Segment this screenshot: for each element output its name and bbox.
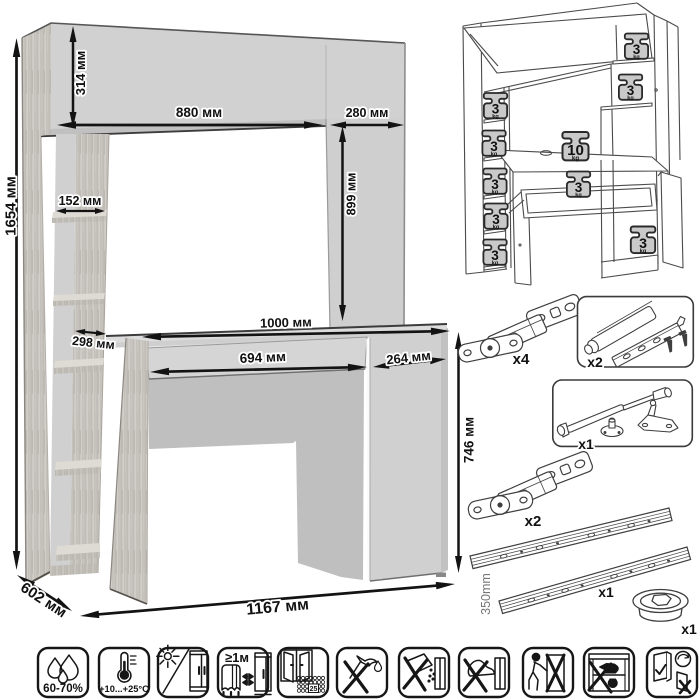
svg-text:746 мм: 746 мм [462, 417, 477, 463]
svg-text:kg: kg [627, 95, 633, 101]
svg-text:314 мм: 314 мм [73, 51, 88, 96]
svg-text:60-70%: 60-70% [43, 683, 83, 695]
svg-text:152 мм: 152 мм [59, 194, 102, 208]
svg-text:kg: kg [493, 224, 499, 230]
svg-text:1167 мм: 1167 мм [246, 596, 310, 618]
svg-text:x1: x1 [598, 584, 614, 600]
svg-text:x1: x1 [578, 436, 594, 452]
svg-text:kg: kg [492, 114, 498, 120]
svg-text:880 мм: 880 мм [176, 105, 222, 120]
svg-text:kg: kg [575, 192, 581, 198]
svg-text:602 мм: 602 мм [17, 579, 69, 621]
svg-text:kg: kg [491, 151, 497, 157]
svg-text:x1: x1 [681, 621, 697, 637]
svg-text:899 мм: 899 мм [345, 173, 359, 216]
svg-text:x4: x4 [513, 351, 530, 368]
svg-text:kg: kg [572, 155, 579, 162]
svg-text:1654 мм: 1654 мм [3, 176, 20, 236]
svg-text:280 мм: 280 мм [346, 106, 389, 120]
svg-text:kg: kg [633, 54, 639, 60]
svg-text:1000 мм: 1000 мм [260, 314, 312, 330]
svg-text:kg: kg [640, 249, 647, 255]
svg-text:x2: x2 [587, 354, 603, 370]
svg-text:kg: kg [492, 189, 498, 195]
svg-text:350mm: 350mm [479, 573, 493, 615]
svg-text:25: 25 [310, 686, 318, 693]
svg-text:x2: x2 [525, 513, 542, 530]
svg-text:+10...+25°C: +10...+25°C [99, 684, 149, 694]
svg-text:≥1м: ≥1м [225, 650, 249, 665]
svg-text:kg: kg [492, 260, 498, 266]
svg-text:694 мм: 694 мм [239, 349, 286, 366]
